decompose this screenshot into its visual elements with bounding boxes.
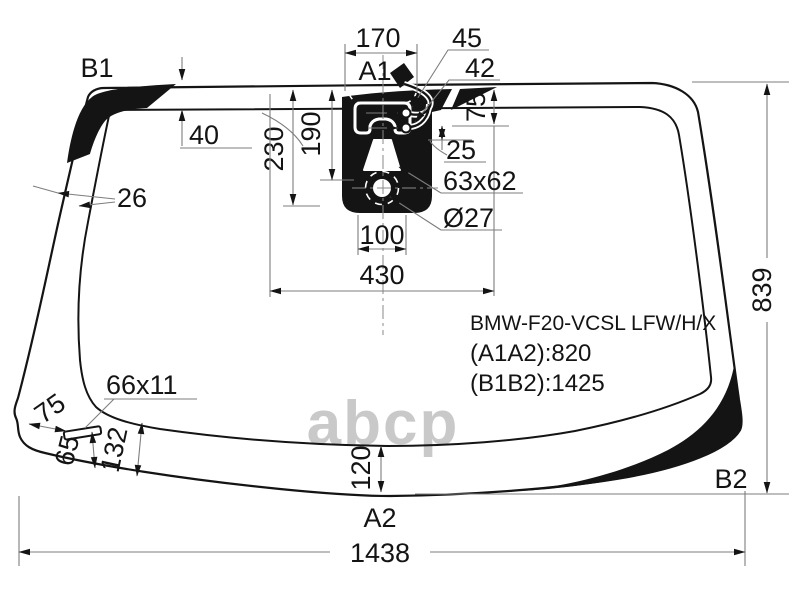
- windshield-diagram: abcp 170 A1 45 42 75 25: [0, 0, 800, 600]
- dim-label-839: 839: [747, 267, 777, 312]
- diagram-canvas: abcp 170 A1 45 42 75 25: [0, 0, 800, 600]
- leader-66x11: [85, 399, 114, 428]
- ceramic-corner-b1: [67, 84, 176, 163]
- point-label-a2: A2: [363, 503, 396, 533]
- spec-a1a2: (A1A2):820: [470, 340, 591, 367]
- dim-label-75-bottom: 75: [29, 388, 71, 430]
- dim-label-66x11: 66x11: [106, 370, 178, 400]
- dim-label-120: 120: [346, 445, 376, 490]
- part-code: BMW-F20-VCSL LFW/H/X: [470, 312, 716, 335]
- dim-label-40: 40: [189, 120, 219, 150]
- dim-label-26: 26: [117, 183, 147, 213]
- dim-line-132: [137, 423, 142, 476]
- point-label-a1: A1: [358, 56, 391, 86]
- dim-label-75-top: 75: [461, 92, 491, 122]
- dim-label-o27: Ø27: [443, 203, 494, 233]
- dim-label-100: 100: [359, 220, 404, 250]
- dim-label-170: 170: [355, 23, 400, 53]
- leader-26-outer: [58, 193, 115, 199]
- dim-label-1438: 1438: [350, 538, 410, 568]
- point-label-b2: B2: [714, 464, 747, 494]
- leader-26-inner: [79, 202, 115, 206]
- watermark: abcp: [307, 389, 460, 458]
- dim-label-25: 25: [446, 135, 476, 165]
- wire-terminal-lower: [402, 124, 411, 133]
- dim-label-190: 190: [296, 111, 326, 156]
- spec-b1b2: (B1B2):1425: [470, 370, 605, 397]
- dim-label-230: 230: [259, 126, 289, 171]
- point-label-b1: B1: [80, 53, 113, 83]
- dim-label-42: 42: [465, 53, 495, 83]
- dim-label-430: 430: [359, 260, 404, 290]
- wire-terminal-upper: [402, 109, 411, 118]
- dim-label-63x62: 63x62: [443, 166, 517, 196]
- dim-label-45: 45: [452, 23, 482, 53]
